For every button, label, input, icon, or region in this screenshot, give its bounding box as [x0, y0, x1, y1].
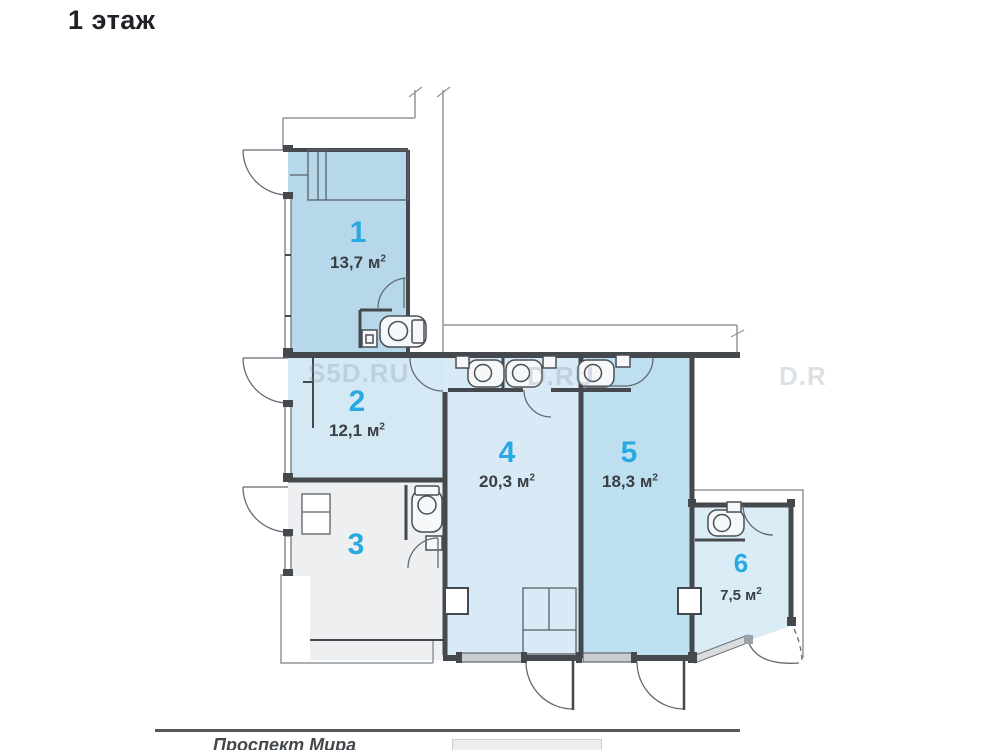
- street-label: Проспект Мира: [213, 735, 356, 750]
- room-3-number: 3: [316, 528, 396, 562]
- room-2-area: 12,1 м2: [295, 421, 419, 441]
- room-2-number: 2: [317, 385, 397, 419]
- room-6-number: 6: [701, 548, 781, 579]
- street-logo-box: [452, 739, 602, 750]
- room-6-area-sup: 2: [756, 586, 762, 597]
- floor-plan-drawing: [0, 0, 1000, 750]
- room-4-area: 20,3 м2: [445, 472, 569, 492]
- door-room-1-left: [243, 150, 288, 195]
- street-line: [155, 729, 740, 732]
- window-room-3: [285, 536, 291, 574]
- window-room-1: [285, 198, 291, 352]
- room-4-number: 4: [467, 436, 547, 470]
- watermark-tile-2: D.RU: [527, 361, 595, 392]
- sink-icon-room-6: [727, 502, 741, 512]
- room-4-area-sup: 2: [529, 472, 535, 483]
- sill-room-5: [583, 653, 635, 662]
- entry-door-arc-room-6: [748, 641, 799, 663]
- room-5-area-sup: 2: [652, 472, 658, 483]
- room-2-area-sup: 2: [379, 421, 385, 432]
- room-4-area-value: 20,3 м: [479, 472, 529, 491]
- room-2-area-value: 12,1 м: [329, 421, 379, 440]
- room-1-area-value: 13,7 м: [330, 253, 380, 272]
- entry-door-swing-dashed-room-6: [790, 621, 802, 661]
- room-1-number: 1: [318, 216, 398, 250]
- room-6-area: 7,5 м2: [679, 586, 803, 604]
- room-5-area: 18,3 м2: [568, 472, 692, 492]
- toilet-icon-room-4-left: [468, 360, 504, 387]
- window-room-2: [285, 406, 291, 478]
- room-5-area-value: 18,3 м: [602, 472, 652, 491]
- shaft-left: [445, 588, 468, 614]
- entry-door-leaves: [573, 660, 684, 710]
- room-1-area-sup: 2: [380, 253, 386, 264]
- room-6-area-value: 7,5 м: [720, 587, 756, 604]
- room-5-floor: [582, 358, 692, 658]
- toilet-icon-room-3: [412, 486, 442, 532]
- sink-icon-room-5: [616, 355, 630, 367]
- door-room-3-left: [243, 487, 288, 532]
- sink-icon-room-1: [362, 330, 377, 347]
- entry-door-arc-room-5: [637, 662, 684, 709]
- toilet-icon-room-1: [380, 316, 426, 347]
- watermark-tile-3: D.R: [779, 361, 827, 392]
- floor-plan-page: 1 этаж: [0, 0, 1000, 750]
- room-5-number: 5: [589, 436, 669, 470]
- door-room-2-left: [243, 358, 288, 403]
- watermark-tile-1: S5D.RU: [308, 358, 409, 389]
- sill-room-4: [460, 653, 523, 662]
- toilet-icon-room-6: [708, 510, 744, 536]
- entry-door-arc-room-4: [526, 662, 573, 709]
- room-1-area: 13,7 м2: [296, 253, 420, 273]
